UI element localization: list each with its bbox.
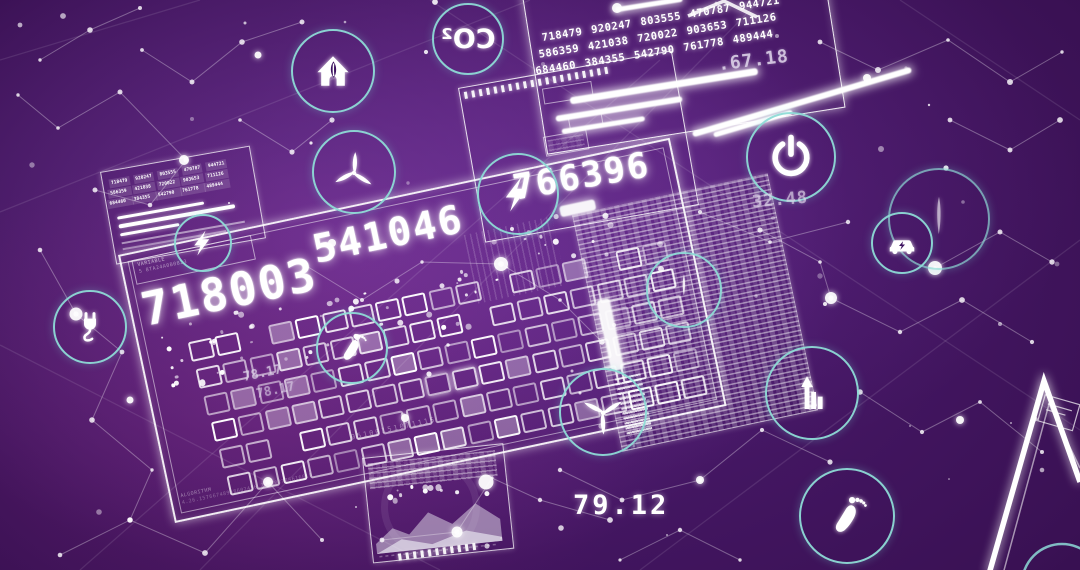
footprint-icon [316,312,388,384]
matrix-dot [180,359,183,362]
matrix-dot [399,493,403,497]
matrix-dot [326,300,332,306]
small-box [568,110,604,131]
key [425,372,453,397]
partial-ring [1022,544,1080,570]
matrix-dot [422,488,427,493]
matrix-dot [427,485,434,492]
key [489,302,517,327]
matrix-dot [173,380,179,386]
key [230,385,258,410]
key [417,346,445,371]
matrix-dot [435,484,442,491]
key [497,329,525,354]
matrix-dot [440,489,443,492]
metric-79: 79.12 [573,490,669,521]
grid-column: 470787903653761778 [689,0,737,54]
key [203,391,231,416]
key [543,290,571,315]
lightning-icon [174,214,232,272]
key [486,388,514,413]
lightning-icon [477,153,559,235]
grid-column: 920247421038384355 [133,172,159,205]
matrix-dot [170,366,173,369]
key [195,364,223,389]
electric-car-icon [871,212,933,274]
matrix-dot [484,490,490,496]
key [443,340,471,365]
key [401,292,429,317]
footprint-icon [799,468,895,564]
key [531,350,559,375]
matrix-dot [396,489,398,491]
grid-column: 944721711126489444 [738,0,786,46]
matrix-dot [166,346,172,352]
scene: VARIABLE 5 8TA24A0B0823 718003 541046 95… [0,0,1080,570]
box-noise [547,134,585,152]
matrix-dot [410,485,414,489]
key [409,319,437,344]
plug-icon [53,290,127,364]
matrix-dot [387,494,394,501]
key [428,286,456,311]
matrix-dot [220,330,224,334]
key [268,320,296,345]
key [344,389,372,414]
matrix-dot [460,270,464,274]
key [264,406,292,431]
wind-turbine-icon [559,368,647,456]
small-box [543,129,590,156]
key [219,445,247,470]
mini-chart-panel [362,443,514,563]
key [558,344,586,369]
key [291,401,319,426]
key [512,382,540,407]
key [188,337,216,362]
corner-label-box [1038,395,1080,431]
eco-house-icon [291,29,375,113]
data-grid-mini: 7184795863596844609202474210383843558035… [108,158,234,209]
matrix-dot [392,498,398,504]
key [398,378,426,403]
key [436,313,464,338]
matrix-dot [161,336,164,339]
key [325,422,353,447]
matrix-dot [457,277,462,282]
key [211,418,239,443]
matrix-dot [175,375,179,379]
key [520,409,548,434]
key [375,298,403,323]
grid-column: 718479586359684460 [108,176,134,209]
co2-label: CO² [441,24,496,55]
key [390,351,418,376]
metric-32: 32.48 [751,188,809,213]
matrix-dot [422,485,429,492]
co2-icon: CO² [432,3,504,75]
key [467,420,495,445]
growth-chart-icon [765,346,859,440]
matrix-dot [364,292,367,295]
key [550,317,578,342]
matrix-dot [455,490,459,494]
key [459,393,487,418]
key [451,367,479,392]
key [478,361,506,386]
key [333,449,361,474]
key [214,332,242,357]
key [245,439,273,464]
key [238,412,266,437]
key [371,384,399,409]
needle-icon [646,252,722,328]
key [470,334,498,359]
key [318,395,346,420]
key [524,323,552,348]
chart-text-noise [368,450,498,489]
matrix-dot [464,272,469,277]
matrix-dot [171,383,176,388]
key [516,296,544,321]
grid-column: 803555720022542790 [157,168,183,201]
key [505,355,533,380]
key [299,427,327,452]
grid-column: 944721711126489444 [205,159,231,192]
grid-column: 470787903653761778 [181,163,207,196]
matrix-dot [571,253,577,259]
wind-turbine-icon [312,130,396,214]
matrix-dot [352,298,359,305]
matrix-dot [394,278,400,284]
key [493,415,521,440]
